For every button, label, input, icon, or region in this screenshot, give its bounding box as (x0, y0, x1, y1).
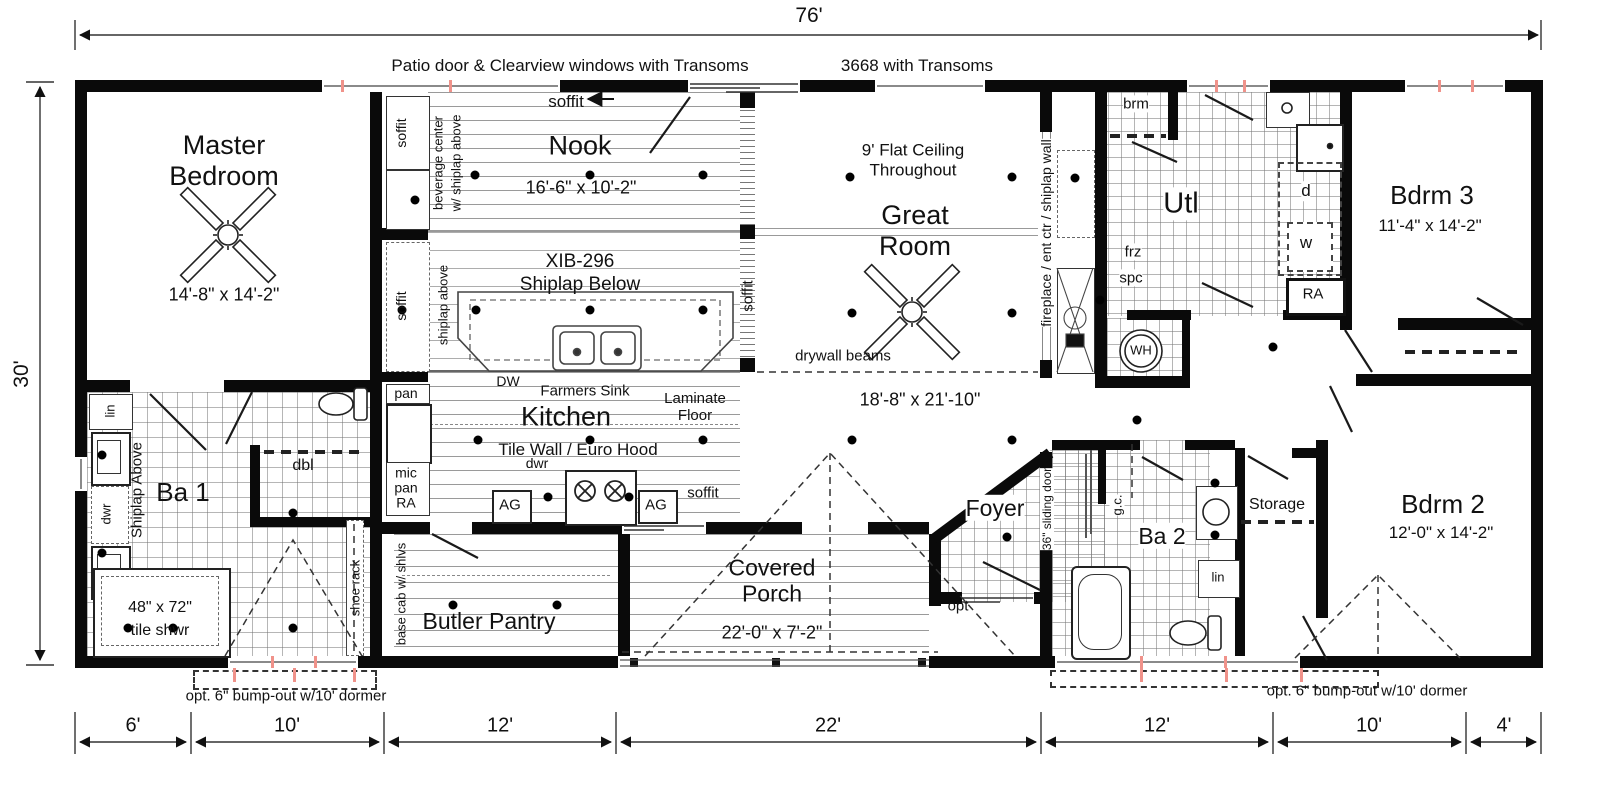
ceiling-note: 9' Flat Ceiling Throughout (821, 140, 1006, 179)
bumpout-tick (1140, 668, 1143, 682)
sliding-door-leaf (1090, 450, 1092, 534)
opt-door-label: opt (948, 597, 969, 614)
beverage-center-label: beverage center (431, 116, 446, 210)
dim-segment: 4' (1497, 715, 1512, 738)
ceiling-light-dot (1003, 533, 1012, 542)
laminate-floor-label: Laminate Floor (648, 390, 743, 425)
window-mullion (271, 656, 274, 668)
shiplap-above-note: Shiplap Above (129, 442, 146, 538)
water-heater-label: WH (1130, 344, 1152, 359)
shower-size-label: 48" x 72" (128, 599, 192, 617)
bumpout-tick (353, 668, 356, 682)
island-model-label: XIB-296 (546, 251, 615, 273)
wall (382, 522, 430, 534)
ceiling-light-dot (1008, 309, 1017, 318)
wall (75, 80, 87, 668)
ceiling-light-dot (289, 509, 298, 518)
dishwasher-label: DW (496, 373, 519, 389)
ag-label: AG (499, 496, 521, 513)
note-patio-door: Patio door & Clearview windows with Tran… (391, 56, 748, 76)
bumpout-tick (293, 668, 296, 682)
window-mullion (1140, 656, 1143, 668)
wall (1040, 360, 1052, 378)
ceiling-light-dot (411, 196, 420, 205)
window-mullion (449, 80, 452, 92)
porch-post (772, 658, 780, 667)
wall (250, 445, 260, 525)
window-mullion (1243, 80, 1246, 92)
ceiling-light-dot (474, 436, 483, 445)
ra-label: RA (1303, 285, 1324, 302)
window-mullion (341, 80, 344, 92)
ceiling-light-dot (544, 493, 553, 502)
bumpout-note-left: opt. 6" bump-out w/10' dormer (186, 687, 387, 704)
window-mullion (1215, 80, 1218, 92)
window-glass (1407, 85, 1503, 87)
freezer-label2: spc (1119, 269, 1142, 286)
tile-wall-label: Tile Wall / Euro Hood (498, 440, 657, 460)
wall (224, 380, 382, 392)
utility-sink (1266, 92, 1310, 128)
ceiling-light-dot (586, 306, 595, 315)
note-3668-door: 3668 with Transoms (841, 56, 993, 76)
covered-porch-dims: 22'-0" x 7'-2" (722, 623, 823, 644)
entertainment-center (1057, 150, 1095, 238)
soffit-label: soffit (393, 118, 409, 147)
sliding-door-label: 36" sliding door (1040, 468, 1054, 550)
soffit-label: soffit (548, 92, 584, 112)
beverage-center-cabinet (386, 170, 430, 230)
bath1-label: Ba 1 (156, 478, 210, 508)
mic-pan-ra-label: mic pan RA (394, 466, 417, 511)
ceiling-light-dot (98, 451, 107, 460)
utility-label: Utl (1163, 187, 1198, 220)
wall (740, 358, 755, 372)
dim-segment: 10' (1356, 715, 1382, 738)
great-room-label: Great Room (855, 200, 975, 262)
soffit-label: soffit (687, 484, 718, 501)
drawer-label: dwr (99, 504, 114, 525)
ceiling-light-dot (1211, 479, 1220, 488)
patio-door-opening (688, 80, 800, 92)
pantry-plank-floor (394, 534, 618, 656)
freezer-label: frz (1125, 243, 1142, 260)
porch-post (630, 658, 638, 667)
drawer-label: dwr (526, 455, 549, 471)
ceiling-fan (181, 188, 276, 283)
ceiling-light-dot (1008, 436, 1017, 445)
bumpout-tick (1300, 668, 1303, 682)
ceiling-light-dot (1008, 173, 1017, 182)
dim-total-width: 76' (795, 4, 822, 28)
wall (740, 225, 755, 239)
wall (1182, 320, 1190, 376)
floor-plan: 76' 30' Patio door & Clearview windows w… (0, 0, 1600, 796)
pan-label: pan (394, 481, 417, 496)
pantry-counter-dashed (402, 575, 610, 576)
ceiling-light-dot (699, 171, 708, 180)
wall (1398, 318, 1531, 330)
beverage-center-label2: w/ shiplap above (449, 115, 464, 212)
wall (1095, 376, 1190, 388)
window-mullion (314, 656, 317, 668)
wall (618, 534, 630, 656)
wall (370, 92, 382, 380)
ceiling-light-dot (98, 549, 107, 558)
bumpout-tick (1225, 668, 1228, 682)
wall (1127, 310, 1191, 320)
wall (1531, 80, 1543, 668)
shower-type-label: tile shwr (131, 622, 190, 640)
wall (87, 380, 130, 392)
bedroom2-dims: 12'-0" x 14'-2" (1389, 523, 1494, 543)
wall (929, 534, 941, 606)
bedroom2-label: Bdrm 2 (1401, 490, 1485, 520)
wall (1316, 440, 1328, 618)
pan-label: pan (394, 385, 417, 401)
window-glass (1057, 661, 1298, 663)
window-glass (80, 459, 82, 489)
ceiling-light-dot (848, 309, 857, 318)
master-bedroom-dims: 14'-8" x 14'-2" (169, 285, 280, 306)
bedroom3-label: Bdrm 3 (1390, 181, 1474, 211)
window-glass (324, 85, 558, 87)
island-shiplap-label: Shiplap Below (520, 274, 640, 296)
bumpout-note-right: opt. 6" bump-out w/10' dormer (1267, 682, 1468, 699)
nook-divider-line (428, 230, 740, 232)
wall (1168, 92, 1178, 140)
base-cab-label: base cab w/ shlvs (394, 543, 409, 646)
wall (1356, 374, 1531, 386)
ceiling-light-dot (471, 171, 480, 180)
wall (1040, 604, 1052, 656)
wall-oven-cabinet (386, 404, 432, 464)
fireplace-wall-label: fireplace / ent ctr / shiplap wall (1038, 139, 1054, 327)
porch-post (918, 658, 926, 667)
washer-label: w (1300, 233, 1312, 253)
window-glass (230, 661, 356, 663)
dim-segment: 12' (1144, 715, 1170, 738)
covered-porch-label: Covered Porch (707, 555, 837, 608)
bumpout-tick (233, 668, 236, 682)
double-closet-label: dbl (292, 457, 313, 475)
ceiling-light-dot (289, 624, 298, 633)
ceiling-light-dot (1071, 174, 1080, 183)
mic-label: mic (394, 466, 417, 481)
broom-closet-label: brm (1123, 95, 1149, 112)
gc-label: g.c. (1110, 495, 1125, 516)
wall (1040, 92, 1052, 132)
wall (1052, 440, 1140, 450)
fireplace-unit (1057, 268, 1095, 374)
kitchen-counter-line (428, 370, 740, 372)
ceiling-light-dot (1133, 416, 1142, 425)
dim-total-depth: 30' (10, 360, 34, 387)
ceiling-light-dot (1269, 343, 1278, 352)
master-bedroom-label: Master Bedroom (134, 130, 314, 192)
wall (1185, 440, 1235, 450)
drywall-beams-label: drywall beams (795, 347, 891, 364)
nook-label: Nook (548, 130, 611, 161)
wall (75, 80, 1543, 92)
storage-label: Storage (1249, 496, 1305, 514)
ceiling-light-dot (472, 306, 481, 315)
dim-segment: 12' (487, 715, 513, 738)
wall (868, 522, 929, 534)
sliding-door-leaf (1085, 454, 1087, 538)
window-mullion (1438, 80, 1441, 92)
wall (740, 92, 755, 108)
great-room-dims: 18'-8" x 21'-10" (860, 390, 981, 411)
butler-pantry-label: Butler Pantry (423, 608, 556, 634)
bathtub-basin (1078, 574, 1122, 650)
bath2-label: Ba 2 (1138, 523, 1185, 549)
dim-segment: 22' (815, 715, 841, 738)
ceiling-light-dot (1211, 531, 1220, 540)
ceiling-light-dot (699, 436, 708, 445)
ceiling-light-dot (699, 306, 708, 315)
linen-label: lin (103, 404, 118, 417)
wall (1095, 92, 1107, 384)
soffit-label: soffit (393, 291, 409, 320)
bedroom3-dims: 11'-4" x 14'-2" (1378, 216, 1481, 236)
wall (1098, 440, 1106, 504)
linen-label: lin (1211, 571, 1224, 586)
ceiling-fan (865, 265, 960, 360)
shiplap-above-label: shiplap above (436, 265, 451, 345)
wall (382, 372, 428, 382)
window-glass (1189, 85, 1268, 87)
dim-segment: 10' (274, 715, 300, 738)
window-mullion (1471, 80, 1474, 92)
window-glass (877, 85, 983, 87)
window-mullion (1224, 656, 1227, 668)
farmers-sink-label: Farmers Sink (540, 382, 629, 399)
ag-label: AG (645, 496, 667, 513)
kitchen-label: Kitchen (521, 401, 611, 432)
wall (706, 522, 802, 534)
ra-label: RA (394, 496, 417, 511)
dryer-label: d (1301, 181, 1310, 201)
dim-segment: 6' (126, 715, 141, 738)
soffit-label: soffit (740, 280, 757, 311)
foyer-label: Foyer (966, 495, 1025, 521)
nook-dims: 16'-6" x 10'-2" (526, 178, 637, 199)
shoe-rack-label: shoe rack (348, 560, 363, 616)
ceiling-light-dot (625, 493, 634, 502)
ceiling-light-dot (848, 436, 857, 445)
ceiling-light-dot (1096, 296, 1105, 305)
